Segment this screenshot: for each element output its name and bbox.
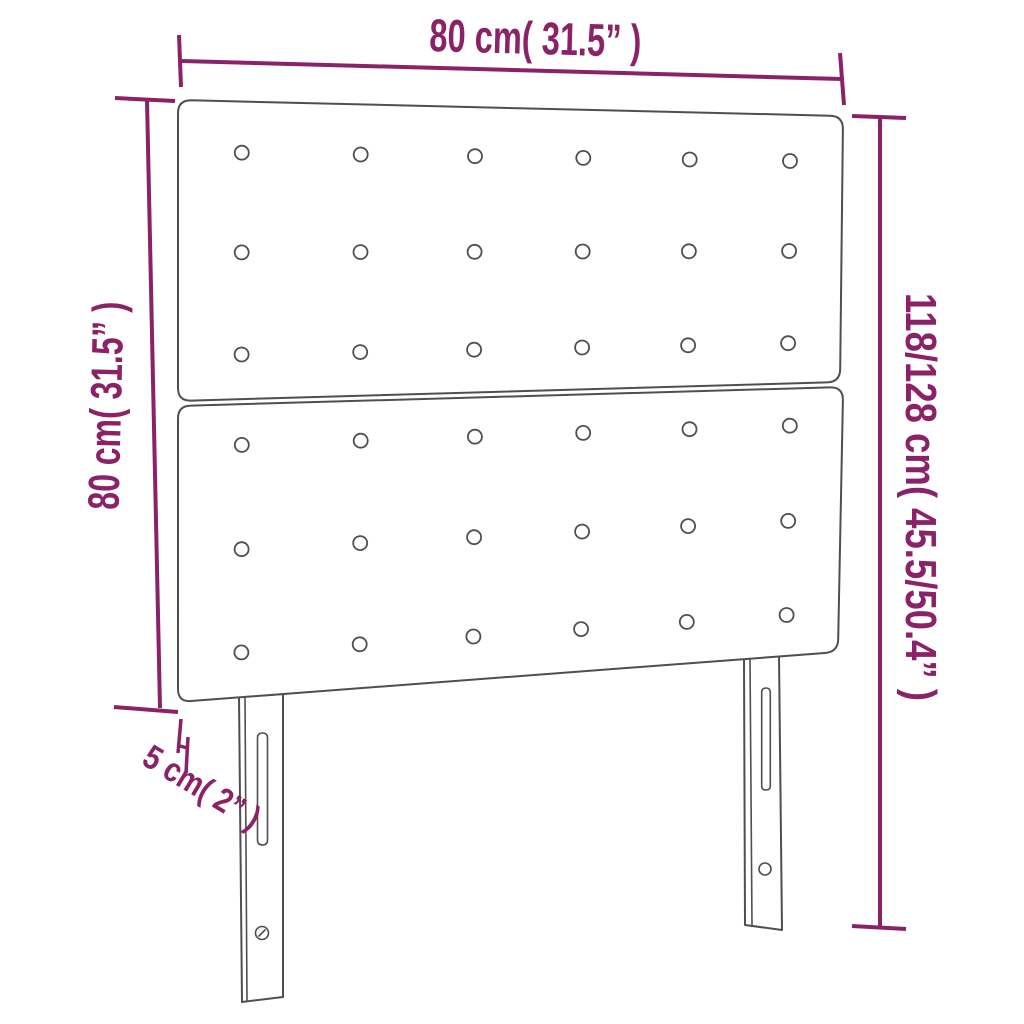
tufting-button — [783, 154, 797, 168]
tufting-button — [235, 542, 249, 556]
dimension-top-width: 80 cm( 31.5” ) — [179, 9, 844, 105]
tufting-button — [235, 438, 249, 452]
tufting-button — [783, 419, 797, 433]
tufting-button — [353, 345, 367, 359]
tufting-button — [781, 514, 795, 528]
tufting-button — [576, 151, 590, 165]
dimension-tick — [114, 707, 178, 712]
dimension-left-height: 80 cm( 31.5” ) — [79, 98, 178, 712]
upper-panel — [178, 100, 843, 400]
dimension-line — [147, 100, 160, 708]
tufting-button — [468, 149, 482, 163]
dimension-connector — [180, 746, 187, 748]
dimension-tick — [840, 53, 844, 105]
tufting-button — [683, 153, 697, 167]
tufting-button — [682, 244, 696, 258]
tufting-button — [466, 630, 480, 644]
tufting-button — [574, 622, 588, 636]
lower-panel — [178, 387, 843, 701]
tufting-button — [235, 146, 249, 160]
tufting-button — [354, 148, 368, 162]
tufting-button — [681, 338, 695, 352]
diagram-canvas: 80 cm( 31.5” ) 80 cm( 31.5” ) 118/128 cm… — [0, 0, 1024, 1024]
tufting-button — [235, 245, 249, 259]
dimension-label-top-width: 80 cm( 31.5” ) — [429, 9, 642, 67]
tufting-button — [681, 519, 695, 533]
tufting-button — [234, 645, 248, 659]
tufting-button — [680, 615, 694, 629]
headboard-dimension-diagram: 80 cm( 31.5” ) 80 cm( 31.5” ) 118/128 cm… — [0, 0, 1024, 1024]
tufting-button — [782, 244, 796, 258]
tufting-button — [576, 426, 590, 440]
tufting-button — [353, 637, 367, 651]
dimension-tick — [852, 926, 906, 929]
dimension-tick — [179, 35, 181, 87]
right-leg — [744, 656, 782, 930]
tufting-button — [468, 245, 482, 259]
tufting-button — [780, 608, 794, 622]
tufting-button — [468, 430, 482, 444]
tufting-button — [576, 245, 590, 259]
tufting-button — [467, 530, 481, 544]
dimension-line — [182, 61, 842, 79]
tufting-button — [575, 341, 589, 355]
tufting-button — [354, 245, 368, 259]
left-leg — [239, 694, 283, 1002]
tufting-button — [235, 348, 249, 362]
dimension-right-total-height: 118/128 cm( 45.5/50.4” ) — [852, 116, 945, 929]
dimension-tick — [852, 116, 906, 118]
tufting-button — [781, 336, 795, 350]
tufting-button — [575, 525, 589, 539]
tufting-button — [683, 422, 697, 436]
tufting-button — [353, 536, 367, 550]
tufting-button — [354, 434, 368, 448]
tufting-button — [467, 343, 481, 357]
dimension-tick — [115, 98, 175, 101]
dimension-label-left-height: 80 cm( 31.5” ) — [79, 301, 133, 510]
dimension-label-right-total-height: 118/128 cm( 45.5/50.4” ) — [896, 293, 945, 701]
